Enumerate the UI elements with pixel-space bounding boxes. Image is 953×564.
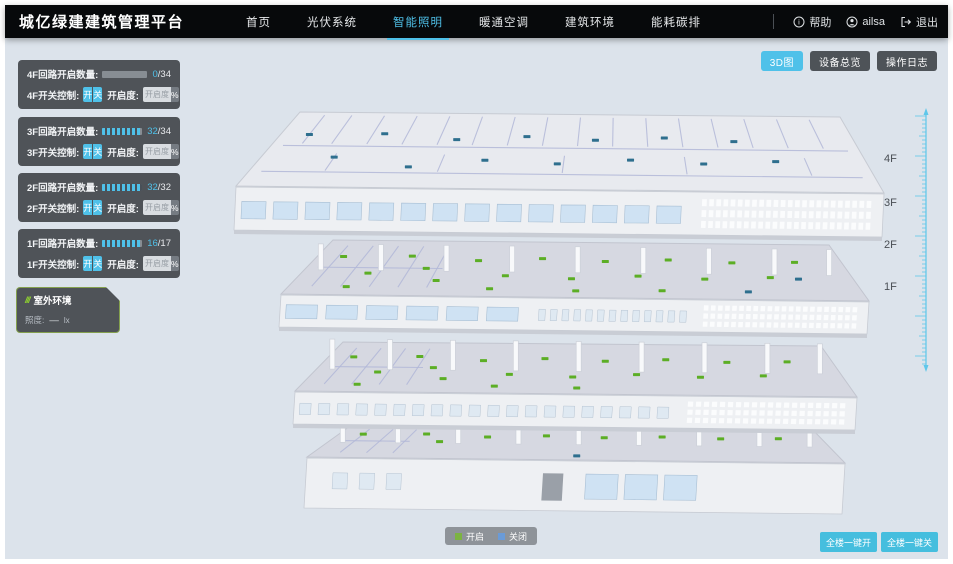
nav-item-hvac[interactable]: 暖通空调 (479, 14, 529, 30)
device-overview-button[interactable]: 设备总览 (810, 51, 870, 71)
nav-item-lighting[interactable]: 智能照明 (393, 14, 443, 30)
panel-2f: 2F回路开启数量: 32/32 2F开关控制: 开 关 开启度: % (18, 173, 180, 222)
switch-label-1f: 1F开关控制: (27, 257, 79, 271)
nav-item-env[interactable]: 建筑环境 (565, 14, 615, 30)
circuit-count-label-2f: 2F回路开启数量: (27, 180, 98, 194)
circuit-count-value-4f: 0/34 (152, 69, 171, 80)
progress-track-3f (102, 128, 142, 135)
dim-percent-button-1f[interactable]: % (171, 256, 179, 271)
dim-input-1f[interactable] (143, 256, 171, 271)
leaf-slashes-icon: /// (25, 295, 30, 305)
legend-off-label: 关闭 (509, 530, 527, 543)
user-icon (846, 16, 858, 28)
switch-on-button-1f[interactable]: 开 (83, 256, 92, 271)
switch-on-button-4f[interactable]: 开 (83, 87, 92, 102)
dim-label-1f: 开启度: (107, 257, 139, 271)
floor-label-4f[interactable]: 4F (884, 153, 897, 165)
header-divider (773, 14, 774, 29)
main-nav: 首页 光伏系统 智能照明 暖通空调 建筑环境 能耗碳排 (246, 14, 701, 30)
dim-percent-button-2f[interactable]: % (171, 200, 179, 215)
progress-track-2f (102, 184, 142, 191)
panel-1f: 1F回路开启数量: 16/17 1F开关控制: 开 关 开启度: % (18, 229, 180, 278)
all-off-button[interactable]: 全楼一键关 (881, 532, 938, 552)
legend-on-swatch (455, 533, 462, 540)
legend-on-label: 开启 (466, 530, 484, 543)
app-window: 城亿绿建建筑管理平台 首页 光伏系统 智能照明 暖通空调 建筑环境 能耗碳排 i… (0, 0, 953, 564)
all-on-button[interactable]: 全楼一键开 (820, 532, 877, 552)
operation-log-button[interactable]: 操作日志 (877, 51, 937, 71)
view-switcher: 3D图 设备总览 操作日志 (761, 51, 937, 71)
logout-button[interactable]: 退出 (900, 14, 938, 30)
view-3d-button[interactable]: 3D图 (761, 51, 803, 71)
floor-2f-slab (293, 339, 857, 434)
dim-label-3f: 开启度: (107, 145, 139, 159)
circuit-count-value-3f: 32/34 (147, 126, 171, 137)
circuit-count-label-4f: 4F回路开启数量: (27, 67, 98, 81)
panel-4f: 4F回路开启数量: 0/34 4F开关控制: 开 关 开启度: % (18, 60, 180, 109)
help-icon: i (793, 16, 805, 28)
switch-off-button-2f[interactable]: 关 (93, 200, 102, 215)
outdoor-env-title: 室外环境 (34, 293, 72, 307)
dim-input-2f[interactable] (143, 200, 171, 215)
logout-label: 退出 (916, 14, 938, 30)
illuminance-unit: lx (64, 316, 70, 325)
outdoor-env-panel: /// 室外环境 照度: — lx (16, 287, 120, 333)
floor-4f-block (234, 112, 884, 241)
switch-off-button-4f[interactable]: 关 (93, 87, 102, 102)
switch-off-button-3f[interactable]: 关 (93, 144, 102, 159)
progress-track-1f (102, 240, 142, 247)
app-title: 城亿绿建建筑管理平台 (19, 11, 184, 32)
nav-item-home[interactable]: 首页 (246, 14, 271, 30)
switch-label-2f: 2F开关控制: (27, 201, 79, 215)
progress-track-4f (102, 71, 147, 78)
logout-icon (900, 16, 912, 28)
floor-3f-slab (279, 240, 869, 338)
header-bar: 城亿绿建建筑管理平台 首页 光伏系统 智能照明 暖通空调 建筑环境 能耗碳排 i… (5, 5, 948, 38)
dim-input-4f[interactable] (143, 87, 171, 102)
legend-off-swatch (498, 533, 505, 540)
panel-3f: 3F回路开启数量: 32/34 3F开关控制: 开 关 开启度: % (18, 117, 180, 166)
nav-item-pv[interactable]: 光伏系统 (307, 14, 357, 30)
floor-label-3f[interactable]: 3F (884, 197, 897, 209)
circuit-count-label-3f: 3F回路开启数量: (27, 124, 98, 138)
svg-text:i: i (799, 17, 801, 26)
dim-input-3f[interactable] (143, 144, 171, 159)
header-utils: i 帮助 ailsa 退出 (773, 14, 938, 30)
zoom-ruler (915, 108, 929, 372)
status-legend: 开启 关闭 (445, 527, 537, 545)
dim-label-4f: 开启度: (107, 88, 139, 102)
dim-percent-button-4f[interactable]: % (171, 87, 179, 102)
legend-off-item: 关闭 (498, 530, 527, 543)
username-label: ailsa (862, 16, 885, 28)
user-menu[interactable]: ailsa (846, 16, 885, 28)
help-label: 帮助 (809, 14, 831, 30)
floor-label-2f[interactable]: 2F (884, 239, 897, 251)
legend-on-item: 开启 (455, 530, 484, 543)
bulk-controls: 全楼一键开 全楼一键关 (820, 532, 938, 552)
circuit-count-value-1f: 16/17 (147, 238, 171, 249)
switch-label-3f: 3F开关控制: (27, 145, 79, 159)
switch-on-button-2f[interactable]: 开 (83, 200, 92, 215)
switch-off-button-1f[interactable]: 关 (93, 256, 102, 271)
illuminance-value: — (49, 315, 59, 326)
switch-label-4f: 4F开关控制: (27, 88, 79, 102)
dim-label-2f: 开启度: (107, 201, 139, 215)
help-button[interactable]: i 帮助 (793, 14, 831, 30)
circuit-count-label-1f: 1F回路开启数量: (27, 236, 98, 250)
floor-label-1f[interactable]: 1F (884, 281, 897, 293)
circuit-count-value-2f: 32/32 (147, 182, 171, 193)
dim-percent-button-3f[interactable]: % (171, 144, 179, 159)
switch-on-button-3f[interactable]: 开 (83, 144, 92, 159)
illuminance-label: 照度: (25, 314, 44, 326)
nav-item-energy[interactable]: 能耗碳排 (651, 14, 701, 30)
